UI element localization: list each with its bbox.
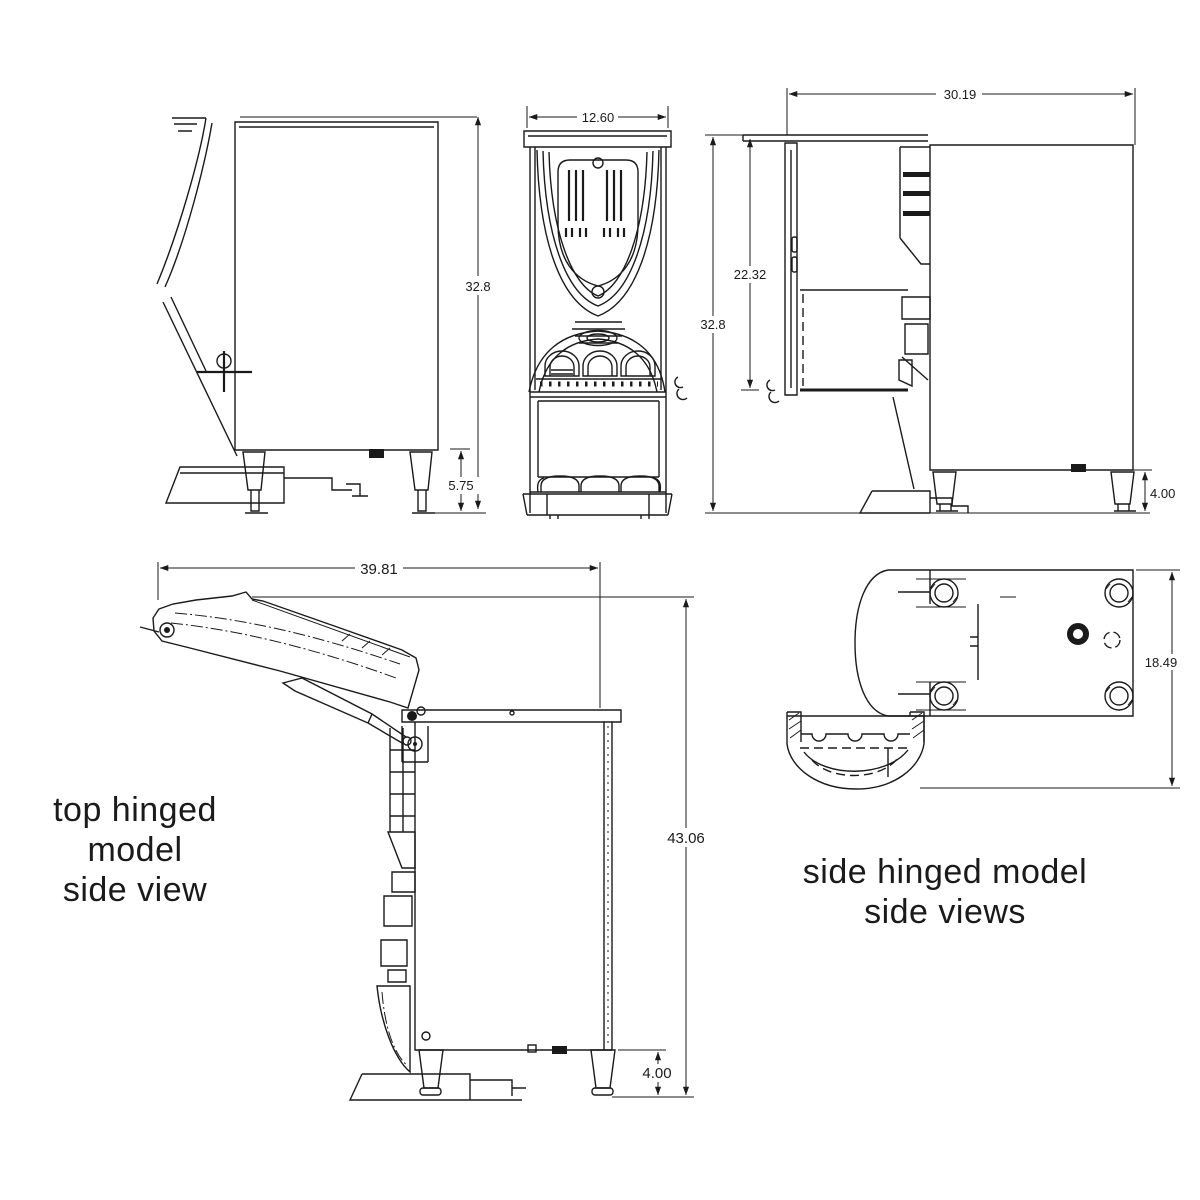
dim-label-depth: 30.19 [944,87,977,102]
bottom-fitting-outline [528,1045,536,1052]
rim-center-screw [510,711,514,715]
hinge-pin-dark [407,711,417,721]
drain-fitting [552,1046,567,1054]
front-panel-slant [893,397,914,489]
hopper-shield-curves [537,150,659,316]
drip-tray [860,491,968,513]
caption-top-hinged-line2: side view [8,870,262,910]
door-handle-upper [792,237,797,252]
view-side-open: 30.19 32.8 22.32 [696,86,1175,513]
secondary-hole [1104,632,1120,648]
hinge-plate-lines [916,579,966,710]
hinge-pivot-mark [197,351,252,392]
shelf-bar-1 [903,172,930,177]
base-plate-outline [888,570,1133,716]
view-side-closed: 32.8 5.75 [157,117,495,513]
interior-shelf-frame [900,147,930,264]
dim-label-width: 12.60 [582,110,615,125]
caption-side-hinged-line1: side hinged model [795,852,1095,892]
legs [243,452,435,513]
dim-leg-height-open: 4.00 [1090,470,1175,511]
dim-overall-depth: 30.19 [787,86,1135,145]
corner-bolt-top-left [930,579,958,607]
hinge-break-symbol-icon [675,377,687,400]
corner-bolt-top-right [1105,579,1133,607]
center-reference-line [970,604,978,680]
view-front: 12.60 [523,106,687,519]
dim-overall-height-open: 32.8 [696,135,788,511]
door-handle-lower [792,257,797,272]
hinge-pin-ring [417,707,425,715]
caption-top-hinged-line1: top hinged model [8,790,262,870]
dim-depth-lid-open: 39.81 [158,560,600,708]
dim-leg-height-closed: 5.75 [443,449,480,511]
top-cap [524,131,671,147]
dim-label-height-closed: 32.8 [465,279,490,294]
dim-label-height-lid-open: 43.06 [667,830,705,847]
cabinet-body-outline [235,122,438,450]
foot-pad-left [420,1088,441,1095]
strut-hinge-pin [403,737,411,745]
lid-nose-pin [164,627,170,633]
fill-hole [1070,626,1086,642]
shelf-bar-3 [903,211,930,216]
drain-fitting [1071,464,1086,472]
hinge-break-symbol-icon [767,380,779,403]
corner-bolt-bottom-left [930,682,958,710]
body-screw-detail [422,1032,430,1040]
door-split-lines [530,392,666,397]
open-lid-outline [153,592,419,708]
lid-nose-handle [140,627,159,632]
discharge-chute [377,986,410,1072]
legs [933,472,1136,511]
dim-top-view-depth: 18.49 [920,570,1182,788]
lid-centerline-1 [175,613,400,664]
drip-tray-top-view [787,712,924,789]
base-pedestal [523,494,672,519]
drain-fitting [369,449,384,458]
open-door-panel [785,143,797,395]
dim-door-opening: 22.32 [730,139,770,390]
cabinet-body [930,145,1133,470]
lid-centerline-2 [171,623,396,678]
view-side-hinged-top: 18.49 [787,570,1182,789]
cup-rest-bumps [530,476,666,492]
dim-label-height-open: 32.8 [700,317,725,332]
dim-label-top-depth: 18.49 [1145,655,1178,670]
dim-overall-width: 12.60 [527,106,668,128]
dim-label-leg-closed: 5.75 [448,478,473,493]
panel-stripes [566,170,624,237]
front-curtain-profile [157,118,237,456]
dim-label-door-opening: 22.32 [734,267,767,282]
dispenser-mechanism-boxes [381,872,415,982]
rounded-lid-end [855,570,888,716]
corner-bolt-bottom-right [1105,682,1133,710]
caption-top-hinged: top hinged model side view [8,790,262,910]
shelf-bar-2 [903,191,930,196]
dim-label-depth-open: 39.81 [360,561,398,578]
foot-pad-right [592,1088,613,1095]
lower-cabinet-opening [538,401,659,477]
dim-leg-height: 4.00 [618,1050,681,1095]
drawing-canvas: 32.8 5.75 12.60 [0,0,1200,1200]
cabinet-body [415,722,612,1050]
gas-strut-arm [283,678,406,743]
dim-label-leg-open: 4.00 [1150,486,1175,501]
caption-side-hinged: side hinged model side views [795,852,1095,932]
top-lid-bar [743,135,928,141]
drip-tray [166,467,368,503]
dim-overall-height-closed: 32.8 [240,117,495,513]
dim-label-leg: 4.00 [642,1065,671,1082]
dome-oval-inner [587,334,609,342]
interior-components [899,297,930,386]
legs [419,1050,615,1088]
dim-height-lid-open: 43.06 [612,599,714,1097]
technical-drawing-sheet: 32.8 5.75 12.60 [0,0,1200,1200]
caption-side-hinged-line2: side views [795,892,1095,932]
